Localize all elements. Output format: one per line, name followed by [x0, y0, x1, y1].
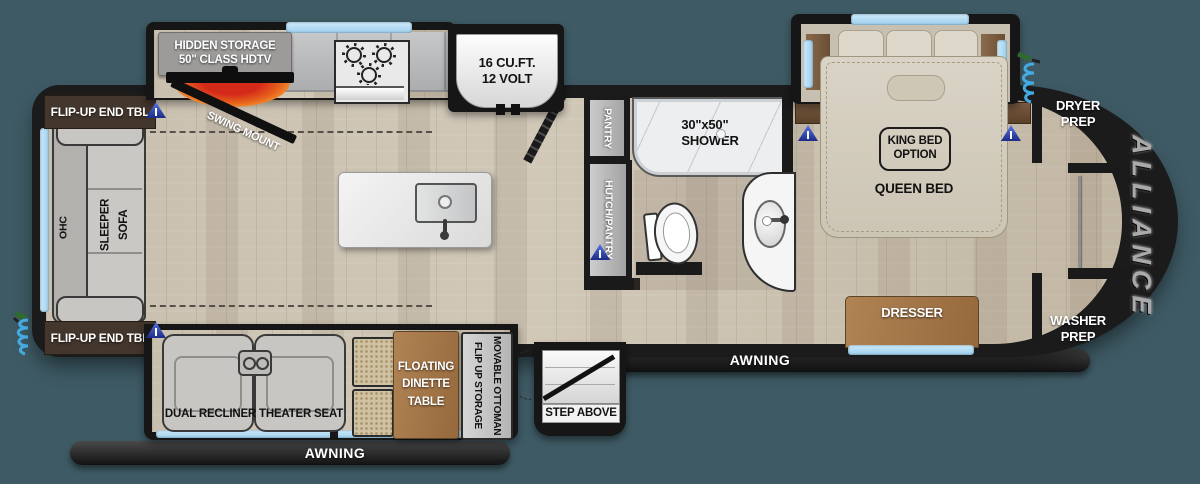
fridge-foot: [496, 104, 505, 115]
hutch-pantry: HUTCH/PANTRY: [584, 160, 632, 280]
awning-rear-label: AWNING: [275, 445, 395, 462]
flip-up-end-table-top: FLIP-UP END TBL: [44, 95, 156, 129]
step-line: [545, 384, 615, 385]
movable-ottoman: MOVABLE OTTOMAN FLIP UP STORAGE: [461, 332, 513, 440]
queen-bed-label: QUEEN BED: [849, 181, 979, 197]
fridge: 16 CU.FT. 12 VOLT: [456, 34, 558, 108]
sleeper-sofa-label: SLEEPER SOFA: [94, 180, 136, 270]
tv-stored: [166, 72, 294, 83]
wicker-stool: [352, 337, 396, 387]
pantry: PANTRY: [584, 96, 630, 160]
ohc-label: OHC: [54, 198, 74, 258]
rv-floorplan: ALLIANCE OHC SLEEPER SOFA FLIP-UP END TB…: [0, 0, 1200, 484]
dresser: DRESSER: [845, 296, 979, 348]
stove: [334, 40, 410, 104]
shower-drain-icon: [716, 129, 726, 139]
fridge-foot: [511, 104, 520, 115]
brand-logo: ALLIANCE: [1118, 125, 1164, 330]
kitchen-island: [338, 172, 492, 248]
sink-faucet-knob-icon: [440, 231, 449, 240]
dresser-label: DRESSER: [846, 305, 978, 321]
washer-prep-label: WASHER PREP: [1038, 313, 1118, 345]
theater-seat-label: DUAL RECLINER THEATER SEAT: [158, 408, 350, 422]
queen-bed: KING BED OPTION QUEEN BED: [820, 56, 1008, 238]
closet-rod: [1078, 176, 1081, 268]
vanity-sink-drain-icon: [762, 216, 772, 226]
rear-window: [40, 128, 49, 312]
spray-hose-icon: [1008, 48, 1052, 104]
closet-wall-bottom: [1068, 268, 1132, 279]
sofa-arm-bottom: [56, 296, 144, 324]
shower-label: 30"x50" SHOWER: [660, 117, 760, 148]
recliner-seat-line: [174, 356, 242, 412]
wicker-stool: [352, 389, 394, 437]
bed-window-left: [803, 40, 813, 88]
bed-pillow: [887, 75, 945, 101]
awning-front-label: AWNING: [690, 352, 830, 369]
brand-text: ALLIANCE: [1126, 135, 1157, 320]
slide-travel-line-bottom: [150, 305, 432, 307]
step-above-label: STEP ABOVE: [542, 404, 620, 423]
bath-wall-below-hutch: [584, 278, 640, 290]
stove-front: [336, 86, 404, 100]
bath-bottom-wall: [636, 262, 702, 275]
stove-burners-icon: [336, 43, 404, 85]
sink-drain-icon: [438, 195, 452, 209]
dinette-table: FLOATING DINETTE TABLE: [393, 331, 459, 439]
cupholder-icon: [243, 357, 256, 370]
bed-window-top: [851, 14, 969, 25]
flip-up-end-table-bottom: FLIP-UP END TBL: [44, 321, 156, 355]
shower: 30"x50" SHOWER: [632, 97, 788, 177]
console-cupholders: [238, 350, 272, 376]
closet-wall-top: [1068, 163, 1130, 173]
vanity-faucet-knob-icon: [780, 215, 789, 224]
cupholder-icon: [256, 357, 269, 370]
dresser-window: [848, 345, 974, 355]
theater-seats: DUAL RECLINER THEATER SEAT: [160, 332, 348, 432]
spray-hose-icon: [8, 306, 52, 356]
pantry-label: PANTRY: [590, 100, 624, 156]
toilet: [642, 200, 700, 265]
recliner-seat-line: [266, 356, 334, 412]
step-line: [545, 367, 615, 368]
sleeper-sofa: OHC SLEEPER SOFA: [52, 118, 146, 322]
king-bed-option-box: KING BED OPTION: [879, 127, 951, 171]
kitchen-window: [286, 22, 412, 33]
